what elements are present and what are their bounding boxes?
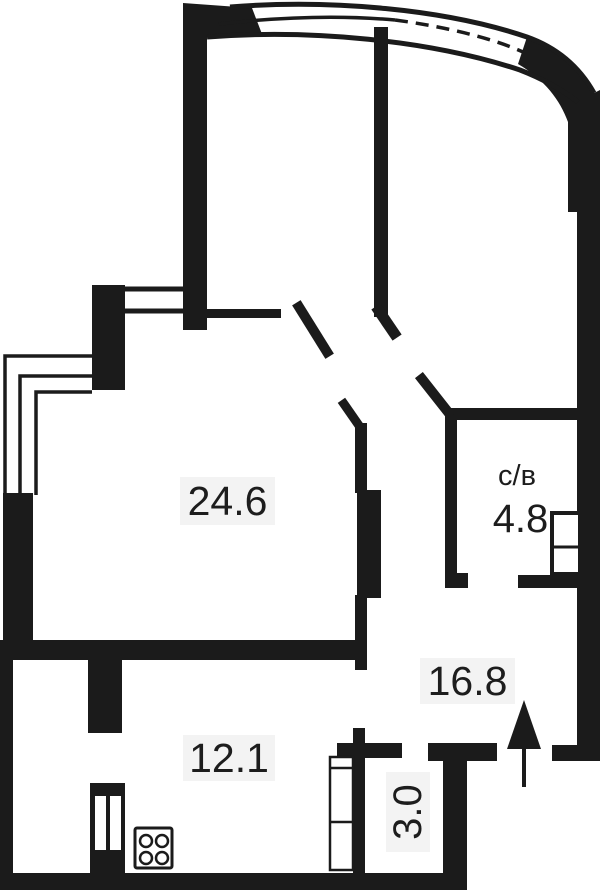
wall-right	[577, 205, 600, 761]
wall-entry-right-stub	[552, 745, 600, 761]
room-label-bathroom-name: с/в	[488, 459, 546, 493]
room-label-bathroom-area: 4.8	[489, 497, 552, 540]
wall-top-right-curved	[518, 37, 600, 212]
corner-window-middle-line	[20, 376, 92, 495]
floor-plan: 24.6 12.1 16.8 с/в 4.8 3.0	[0, 0, 600, 890]
wardrobe-body	[330, 757, 353, 870]
upper-left-window	[125, 289, 184, 311]
door-leaf-living	[299, 307, 327, 352]
wall-living-bottom	[0, 640, 367, 660]
stove-burner	[140, 835, 152, 847]
room-label-hallway: 16.8	[420, 658, 515, 704]
door-leaf-bathroom	[422, 379, 448, 412]
duct-shaft-icon	[552, 513, 580, 574]
wall-storage-right	[443, 755, 467, 890]
corner-window-inner-line	[36, 392, 92, 495]
wall-left-mid	[3, 493, 33, 653]
kitchen-door-icon	[90, 783, 125, 873]
wall-bathroom-left-foot	[445, 573, 468, 588]
wall-bathroom-left	[445, 414, 457, 588]
duct-shaft-box	[552, 513, 580, 574]
entry-arrow-icon	[507, 700, 541, 787]
room-label-living: 24.6	[180, 477, 275, 525]
wall-bathroom-top	[448, 408, 600, 420]
wall-hall-left-thin-lower	[355, 595, 367, 670]
kitchen-door-panel-left	[95, 796, 106, 850]
kitchen-door-panel-right	[110, 796, 121, 850]
wall-bathroom-bottom	[518, 575, 600, 588]
outer-walls	[0, 3, 600, 890]
wall-left-lower	[0, 660, 13, 890]
door-leaf-top-room	[379, 311, 394, 333]
door-leaf-hallway	[344, 404, 360, 427]
wall-hall-left-thin-upper	[355, 423, 367, 493]
wall-top-left-corner	[183, 3, 262, 330]
stove-burner	[156, 852, 168, 864]
room-label-kitchen: 12.1	[183, 735, 275, 781]
stove-burner	[156, 835, 168, 847]
wall-living-partition	[207, 309, 281, 318]
wall-kitchen-stub	[88, 660, 122, 733]
wall-hall-left-thick	[357, 490, 381, 598]
floor-plan-drawing	[0, 0, 600, 890]
wall-top-rooms-divider	[374, 27, 388, 317]
wall-bottom	[0, 873, 467, 890]
wardrobe-icon	[330, 757, 353, 870]
door-leaves	[299, 307, 448, 427]
bay-window-inner-line	[207, 34, 578, 102]
corner-window-icon	[5, 356, 92, 495]
wall-storage-left	[353, 743, 365, 873]
stove-burner	[140, 852, 152, 864]
stove-icon	[135, 828, 172, 868]
wall-storage-stub-top	[353, 728, 365, 743]
entry-arrow-head	[507, 700, 541, 749]
interior-walls	[88, 27, 497, 890]
wall-left-upper-block	[92, 285, 125, 390]
room-label-storage: 3.0	[386, 772, 430, 852]
